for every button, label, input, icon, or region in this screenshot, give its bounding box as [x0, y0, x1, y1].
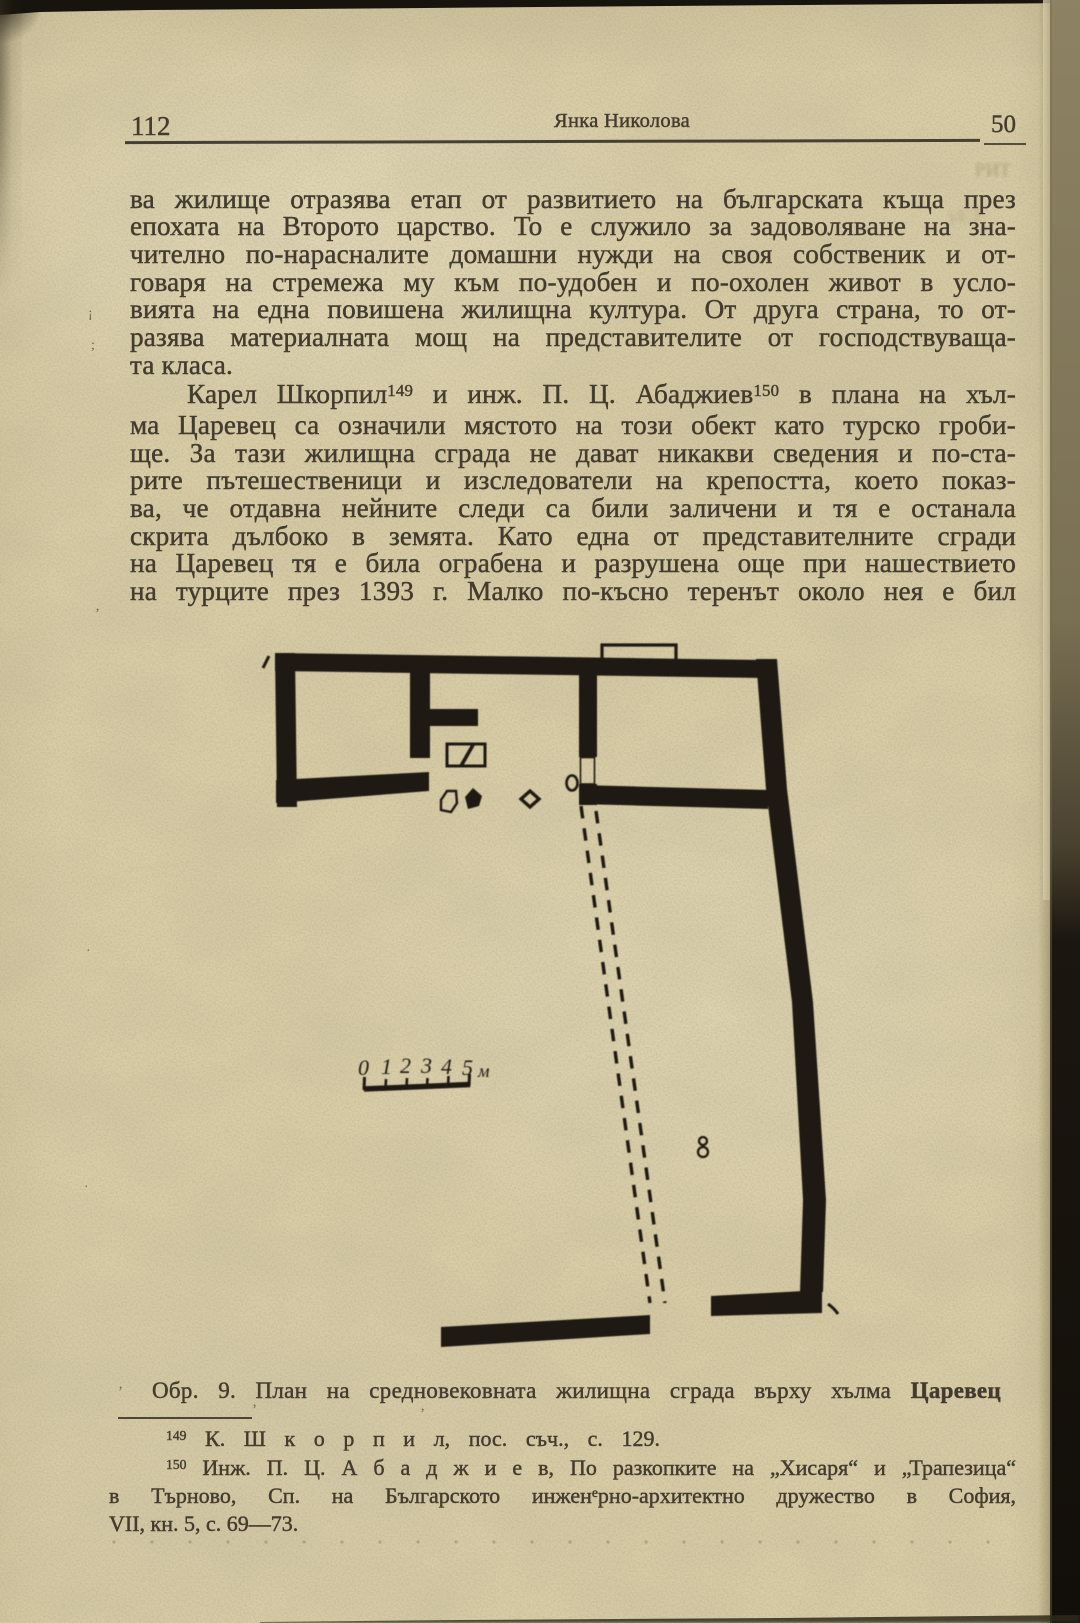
- svg-text:4: 4: [441, 1054, 452, 1079]
- svg-text:5: 5: [462, 1055, 473, 1080]
- svg-text:1: 1: [381, 1054, 392, 1079]
- svg-text:3: 3: [420, 1053, 432, 1078]
- svg-text:м: м: [477, 1061, 490, 1081]
- svg-text:0: 0: [358, 1055, 369, 1080]
- svg-text:2: 2: [400, 1053, 411, 1078]
